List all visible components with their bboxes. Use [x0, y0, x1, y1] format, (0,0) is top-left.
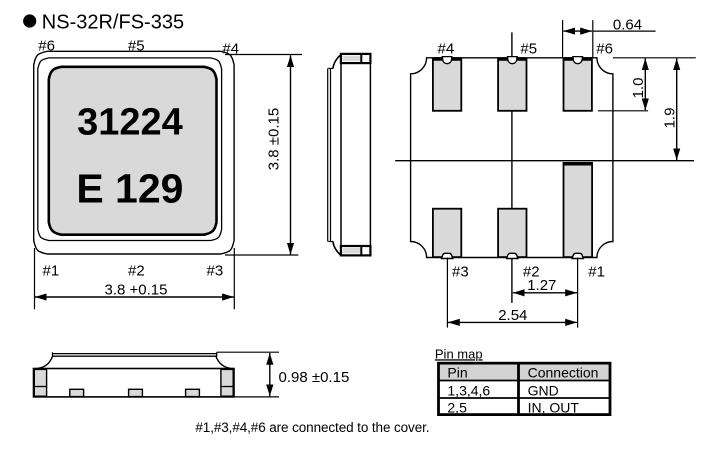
svg-text:31224: 31224 [77, 102, 183, 144]
svg-text:#2: #2 [128, 262, 145, 279]
svg-text:Pin map: Pin map [435, 346, 483, 361]
svg-text:#6: #6 [596, 41, 613, 58]
svg-text:#5: #5 [128, 38, 145, 55]
svg-text:2,5: 2,5 [447, 399, 467, 415]
svg-text:Pin: Pin [447, 364, 467, 380]
svg-text:#6: #6 [38, 38, 55, 55]
svg-text:NS-32R/FS-335: NS-32R/FS-335 [42, 12, 184, 34]
svg-text:#5: #5 [520, 41, 537, 58]
svg-text:GND: GND [528, 383, 559, 399]
svg-text:1.0: 1.0 [630, 78, 647, 99]
svg-text:Connection: Connection [528, 364, 599, 380]
svg-text:#3: #3 [452, 263, 469, 280]
svg-text:E 129: E 129 [76, 165, 183, 211]
svg-text:3.8 ±0.15: 3.8 ±0.15 [265, 108, 282, 170]
svg-text:#4: #4 [438, 41, 455, 58]
svg-text:#1: #1 [588, 263, 605, 280]
svg-text:IN, OUT: IN, OUT [528, 399, 580, 415]
svg-text:1.27: 1.27 [527, 277, 556, 294]
svg-text:2.54: 2.54 [498, 307, 527, 324]
svg-text:1,3,4,6: 1,3,4,6 [447, 383, 490, 399]
svg-text:#1: #1 [43, 262, 60, 279]
svg-text:#3: #3 [207, 262, 224, 279]
svg-text:3.8 +0.15: 3.8 +0.15 [105, 282, 168, 299]
svg-text:0.98 ±0.15: 0.98 ±0.15 [279, 369, 350, 386]
svg-text:0.64: 0.64 [613, 16, 642, 33]
svg-text:1.9: 1.9 [662, 108, 679, 129]
svg-text:#1,#3,#4,#6 are connected to t: #1,#3,#4,#6 are connected to the cover. [195, 420, 429, 435]
